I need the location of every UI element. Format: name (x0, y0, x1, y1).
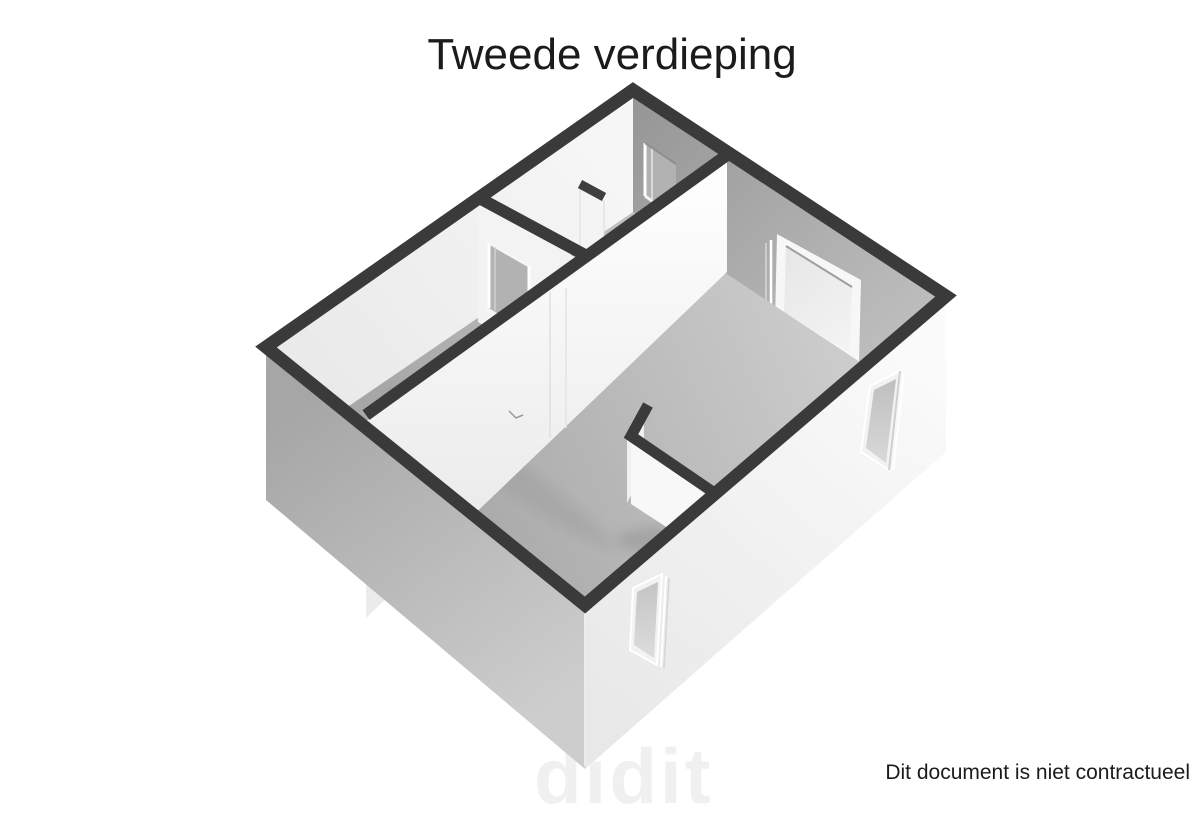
document-page: didit (0, 0, 1200, 801)
page-title: Tweede verdieping (12, 30, 1200, 80)
disclaimer-text: Dit document is niet contractueel (885, 761, 1190, 785)
window-glass (634, 582, 658, 658)
floorplan-3d-render (0, 0, 1200, 801)
